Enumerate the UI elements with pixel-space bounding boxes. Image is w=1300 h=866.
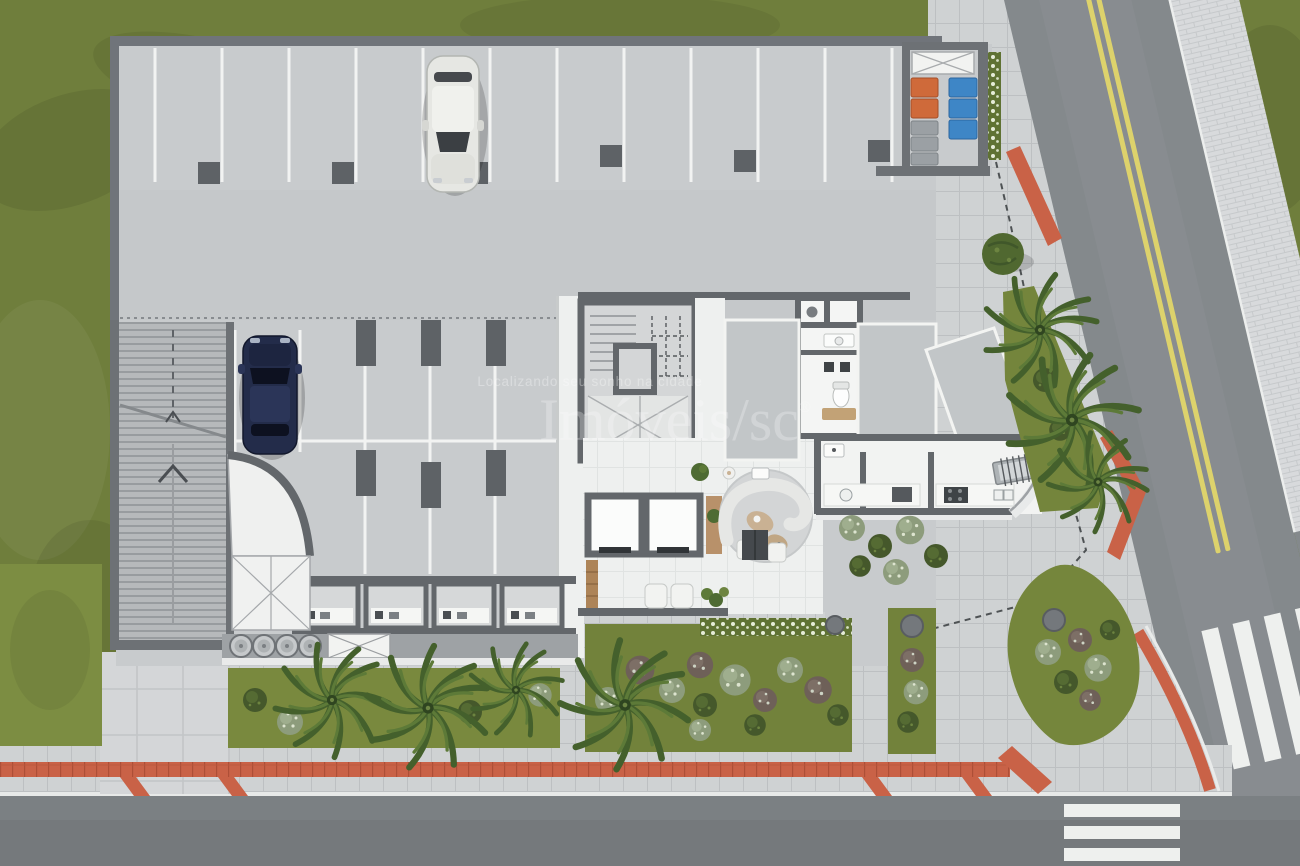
bottom-road — [0, 796, 1300, 866]
oven — [892, 487, 912, 502]
white-car — [422, 56, 488, 196]
planter — [1043, 609, 1065, 631]
bench — [822, 408, 856, 420]
site-left-wall — [110, 36, 119, 328]
utility-rooms — [292, 576, 576, 636]
lobby-south-wall — [578, 608, 728, 616]
elevator — [646, 496, 700, 554]
utility-room — [366, 584, 426, 628]
flower-strip — [988, 52, 1001, 160]
roof-slab — [725, 320, 799, 460]
intercom-panel — [752, 468, 769, 479]
kitchen-sink — [840, 489, 852, 501]
basement-ramp — [110, 320, 234, 650]
stove — [944, 487, 968, 503]
site-plan-rendering: Localizando seu sonho na cidade Imóveis/… — [0, 0, 1300, 866]
armchair — [768, 543, 786, 562]
potted-plant — [691, 463, 709, 481]
recycling-bin-blue — [949, 78, 977, 139]
utility-room — [502, 584, 562, 628]
shaft — [616, 346, 654, 392]
waste-bin — [807, 307, 818, 318]
recycling-bin-gray — [911, 121, 938, 165]
utility-room — [434, 584, 494, 628]
site-plan-canvas — [0, 0, 1300, 866]
elevator — [588, 496, 642, 554]
stair-core — [581, 302, 695, 460]
planter — [826, 616, 844, 634]
red-accent-strip-bottom — [0, 762, 1010, 777]
crosswalk-bottom-road — [1064, 804, 1180, 861]
wc-room — [798, 298, 860, 436]
garden-bed-rect — [888, 608, 936, 754]
site-top-wall — [110, 36, 942, 46]
dark-blue-car — [238, 336, 305, 460]
planter — [901, 615, 923, 637]
